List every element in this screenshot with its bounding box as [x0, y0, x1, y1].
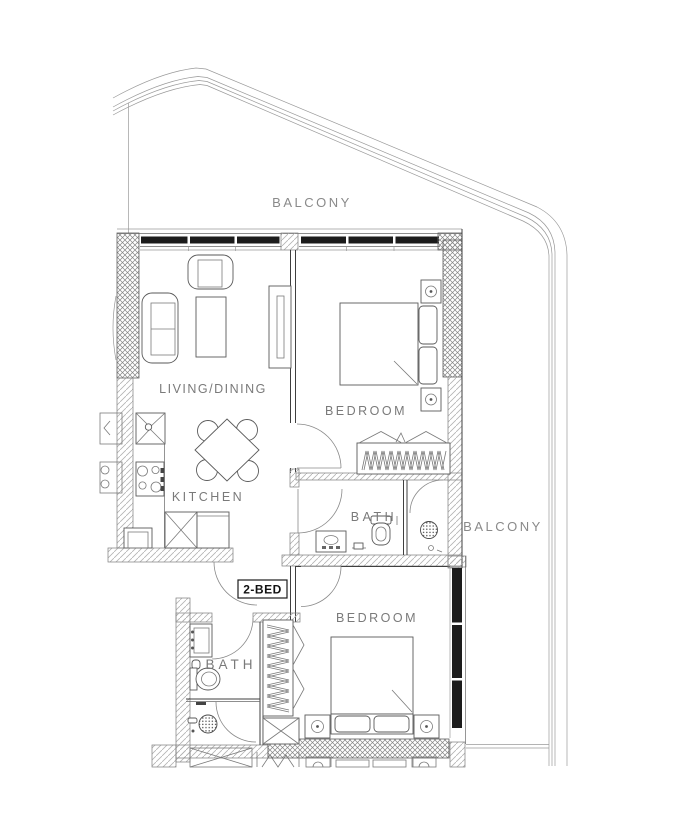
neighbor-sofa-back	[113, 296, 116, 360]
wardrobe-door-mark	[293, 669, 304, 709]
neighbor-burner	[101, 480, 109, 488]
sink-drain	[145, 424, 151, 430]
kitchen-fixtures	[124, 413, 259, 548]
coffee-table	[196, 297, 226, 357]
unit-type-badge: 2-BED	[243, 583, 282, 597]
shower1-door-swing	[410, 480, 443, 513]
bath1-left-wall-upper	[290, 469, 299, 487]
label-kitchen: KITCHEN	[172, 490, 244, 504]
bath2-left-wall	[176, 598, 190, 762]
stove-knob	[161, 486, 165, 491]
label-living-dining: LIVING/DINING	[159, 382, 267, 396]
faucet-dot	[191, 631, 194, 634]
window-segment	[452, 625, 462, 678]
window-segment	[396, 237, 440, 244]
floor-plan-svg: BALCONY BALCONY LIVING/DINING BEDROOM KI…	[0, 0, 695, 834]
label-balcony-top: BALCONY	[272, 195, 352, 210]
sofa	[142, 293, 178, 363]
bedroom1-door-swing	[297, 424, 341, 468]
tv-unit	[269, 286, 291, 368]
label-balcony-right: BALCONY	[463, 519, 543, 534]
bed	[340, 303, 418, 385]
window-segment	[301, 237, 346, 244]
faucet-dot	[191, 647, 194, 650]
stove-knob	[161, 477, 165, 482]
bath1-door-swing	[298, 489, 342, 533]
window-segment	[452, 568, 462, 623]
pillow	[374, 716, 409, 732]
wardrobe-door-mark	[293, 625, 304, 665]
stove-knob	[161, 468, 165, 473]
label-bedroom-bottom: BEDROOM	[336, 611, 418, 625]
label-bath-top: BATH	[351, 510, 397, 524]
left-wall-upper	[117, 233, 139, 378]
wardrobe-door-mark	[405, 432, 447, 444]
shower-control	[188, 718, 197, 723]
bottom-left-wall-step	[152, 745, 176, 767]
bedroom1-right-wall	[443, 240, 462, 377]
neighbor-sink-mark	[104, 421, 110, 435]
lamp-center	[430, 398, 433, 401]
bath-accessory-box	[354, 543, 363, 549]
toilet-bowl	[372, 523, 390, 545]
top-window-wall	[117, 229, 462, 251]
lamp-center	[430, 290, 433, 293]
faucet-dot	[191, 639, 194, 642]
shower-mark	[192, 730, 195, 733]
window-segment	[237, 237, 280, 244]
bed	[331, 637, 413, 714]
bottom-right-wall-piece	[450, 742, 465, 767]
window-jamb-top	[448, 556, 466, 567]
floor-plan-canvas: BALCONY BALCONY LIVING/DINING BEDROOM KI…	[0, 0, 695, 834]
counter-cabinet	[197, 512, 229, 548]
shower2-door-swing	[216, 702, 256, 742]
shower-drain	[199, 715, 217, 733]
shower-threshold-mark	[196, 702, 206, 705]
bath1-bottom-wall	[282, 555, 462, 566]
bath2-fixtures	[188, 624, 220, 733]
lamp-center	[425, 725, 428, 728]
kitchen-bottom-wall	[108, 548, 233, 562]
left-wall-lower	[117, 378, 133, 548]
label-bedroom-top: BEDROOM	[325, 404, 407, 418]
wardrobe-door-mark	[359, 432, 401, 444]
window-pier-wall	[281, 233, 298, 250]
cutoff-pillow	[336, 760, 369, 767]
shower-drain	[421, 522, 438, 539]
lamp-center	[316, 725, 319, 728]
right-window-wall	[448, 556, 466, 744]
bedroom2-door-swing	[301, 567, 341, 607]
shower-control	[429, 546, 434, 551]
neighbor-burner	[101, 466, 109, 474]
pillow	[419, 347, 437, 384]
living-dining-furniture	[142, 255, 291, 368]
shower-mark	[437, 550, 442, 552]
stove	[136, 462, 164, 496]
window-segment	[452, 681, 462, 729]
vanity-mark	[322, 546, 326, 549]
cutoff-pillow	[373, 760, 406, 767]
vanity-mark	[336, 546, 340, 549]
pillow	[335, 716, 370, 732]
vanity-mark	[329, 546, 333, 549]
bedroom1-furniture	[340, 280, 450, 474]
label-bath-bottom: BATH	[205, 657, 256, 672]
bath2-door-swing	[212, 618, 253, 659]
cutoff-lamp	[419, 762, 429, 767]
bath1-left-wall-lower	[290, 533, 299, 555]
window-segment	[141, 237, 188, 244]
pillow	[419, 306, 437, 344]
window-segment	[349, 237, 394, 244]
cutoff-lamp	[313, 762, 323, 767]
bedroom2-furniture	[263, 620, 439, 744]
window-segment	[190, 237, 235, 244]
